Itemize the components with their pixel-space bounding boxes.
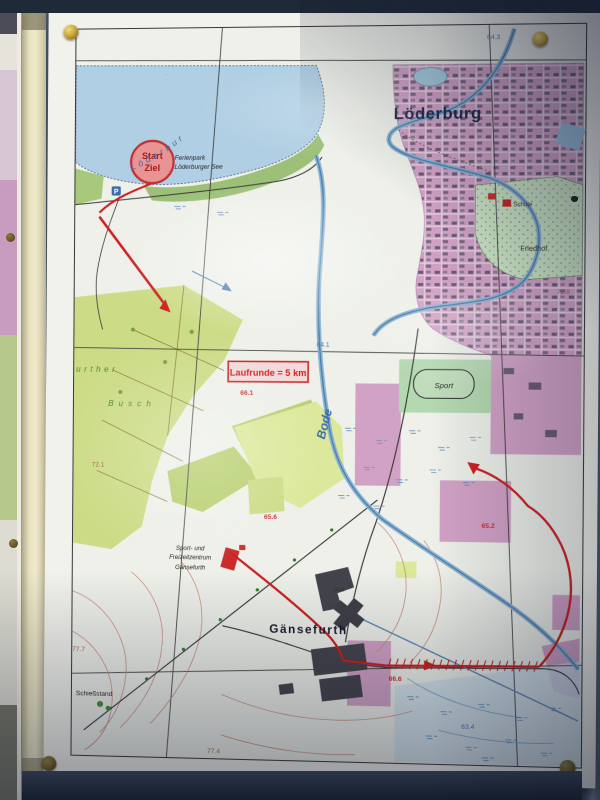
ferienpark-label-line2: Löderburger See: [175, 164, 224, 171]
forest-label-line2: Busch: [108, 399, 156, 408]
spot-height: 72.1: [92, 461, 105, 468]
school-label: Schule: [513, 202, 533, 208]
spot-height: 65.2: [481, 523, 495, 530]
spot-height: 66.6: [389, 676, 403, 683]
map-canvas: P Start Ziel: [69, 22, 588, 770]
spot-height: 77.7: [72, 646, 85, 653]
spot-height: 63.4: [461, 724, 475, 731]
sport-label: Sport: [434, 381, 454, 390]
route-banner-label: Laufrunde = 5 km: [230, 367, 307, 378]
adjacent-map-fragment: [0, 705, 17, 800]
insect-on-frame: [571, 196, 578, 202]
spot-height: 64.3: [487, 34, 501, 41]
town-label-gaensefurth: Gänsefurth: [269, 624, 348, 638]
board-frame-bottom: [22, 771, 582, 800]
stable-label: Stall: [333, 587, 344, 593]
left-panel-pin: [6, 233, 15, 242]
adjacent-map-panel: [0, 0, 22, 800]
topographic-map: P Start Ziel: [69, 22, 588, 770]
cemetery-label: Friedhof: [520, 246, 547, 253]
wooden-frame-bar: [22, 0, 46, 800]
red-building: [488, 193, 495, 199]
freizeitzentrum-label-line3: Gänsefurth: [175, 565, 206, 572]
town-label-loederburg: Löderburg: [394, 104, 482, 123]
adjacent-map-fragment: [0, 180, 17, 335]
brass-pin: [41, 756, 56, 771]
parking-label: P: [114, 189, 119, 196]
spot-height: 65.6: [264, 514, 277, 521]
spot-height: 72.8: [557, 289, 571, 296]
spot-height: 77.4: [207, 748, 220, 755]
pond: [414, 67, 447, 86]
forest-label-line1: urther: [76, 365, 118, 374]
adjacent-map-fragment: [0, 70, 17, 180]
builtup-patch: [440, 480, 512, 542]
builtup-patch: [552, 595, 580, 631]
builtup-patch: [355, 383, 401, 486]
spot-height: 64.1: [317, 341, 330, 348]
freizeitzentrum-label-line2: Freizeitzentrum: [169, 555, 211, 562]
shooting-range-label: Schießstand: [76, 690, 113, 698]
board-frame-top: [0, 0, 600, 13]
left-panel-pin: [9, 539, 18, 548]
adjacent-map-fragment: [0, 34, 17, 70]
freizeitzentrum-label-line1: Sport- und: [176, 546, 205, 552]
school-building: [503, 199, 511, 206]
ferienpark-label-line1: Ferienpark: [175, 155, 206, 162]
map-poster: P Start Ziel: [43, 5, 600, 788]
adjacent-map-fragment: [0, 335, 17, 520]
spot-height: 66.1: [240, 390, 253, 397]
photo-of-map-signboard: P Start Ziel: [0, 0, 600, 800]
field-area: [248, 476, 285, 515]
